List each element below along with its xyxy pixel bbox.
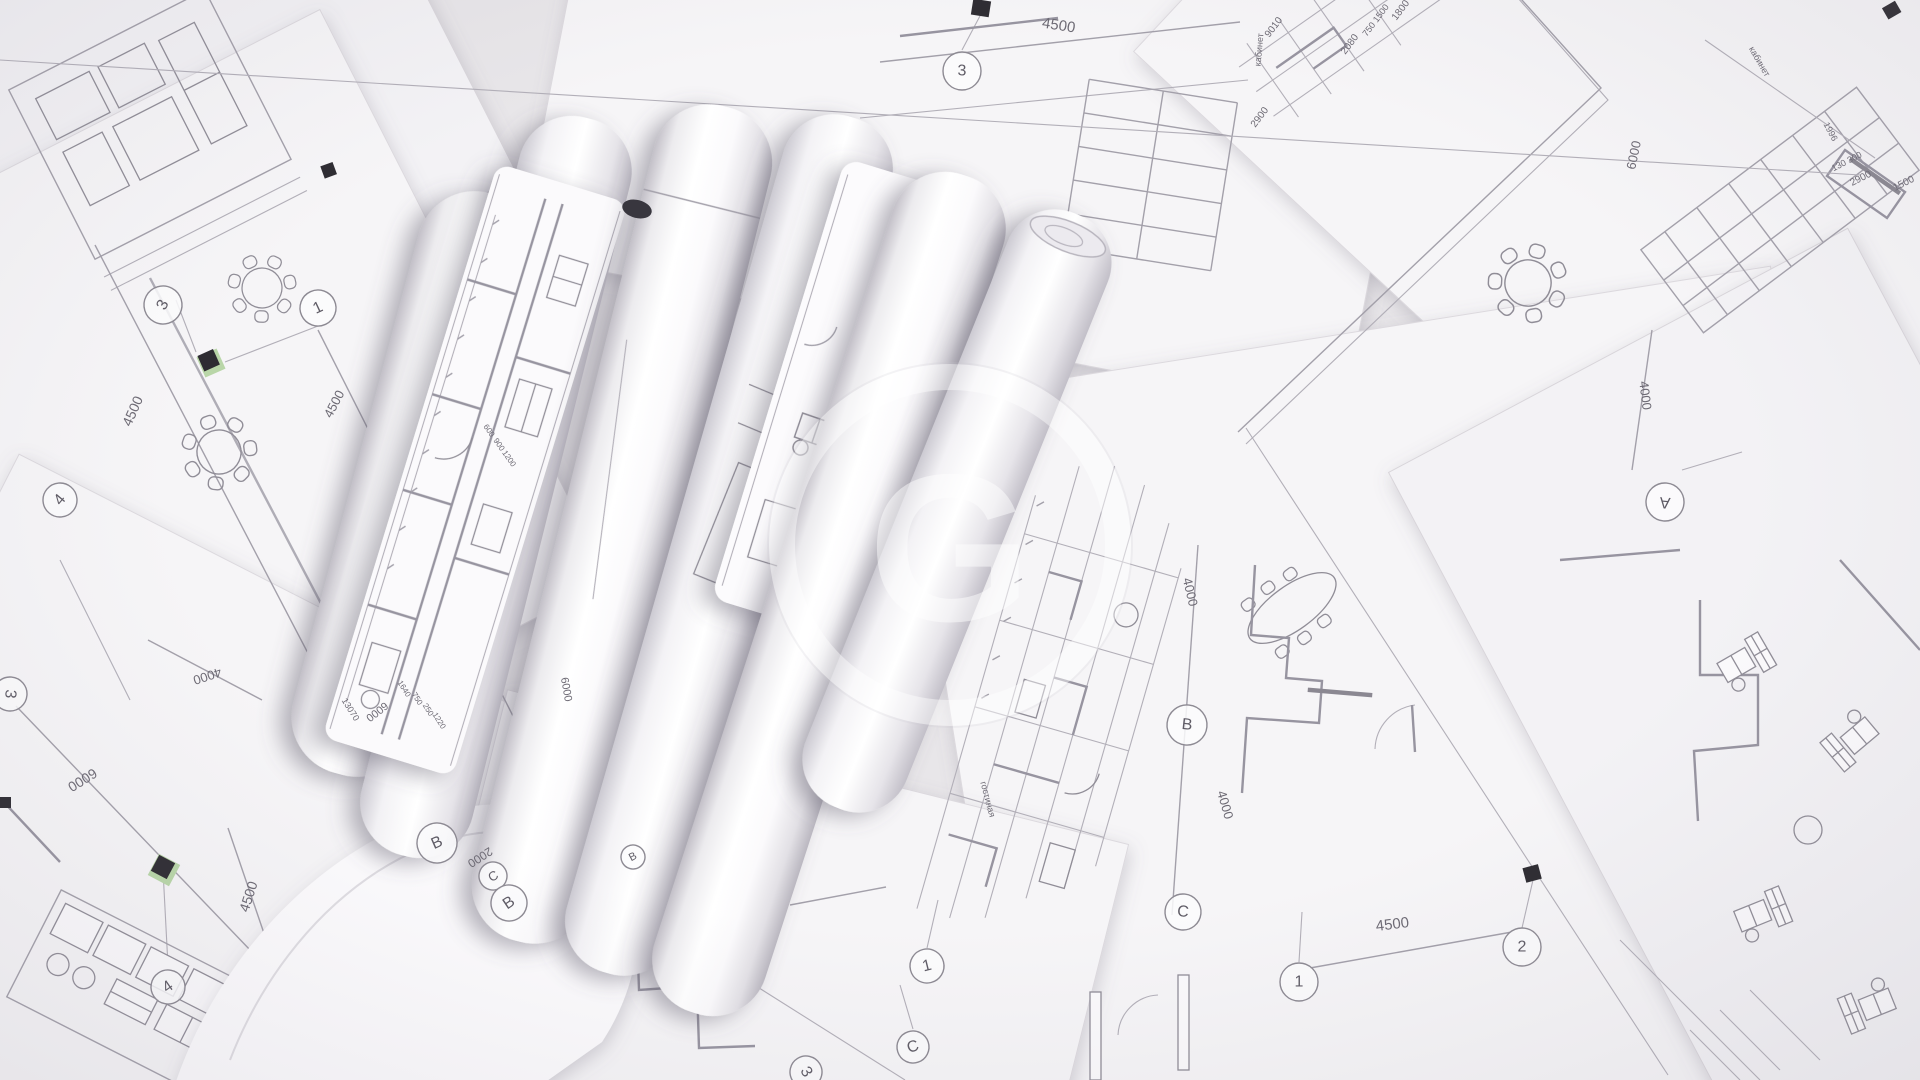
photo-vignette bbox=[0, 0, 1920, 1080]
blueprint-photo: 3 1 3 4 3 4 1 C 3 B C A 2 1 4500 4500 45… bbox=[0, 0, 1920, 1080]
blueprint-scene: 3 1 3 4 3 4 1 C 3 B C A 2 1 4500 4500 45… bbox=[0, 0, 1920, 1080]
